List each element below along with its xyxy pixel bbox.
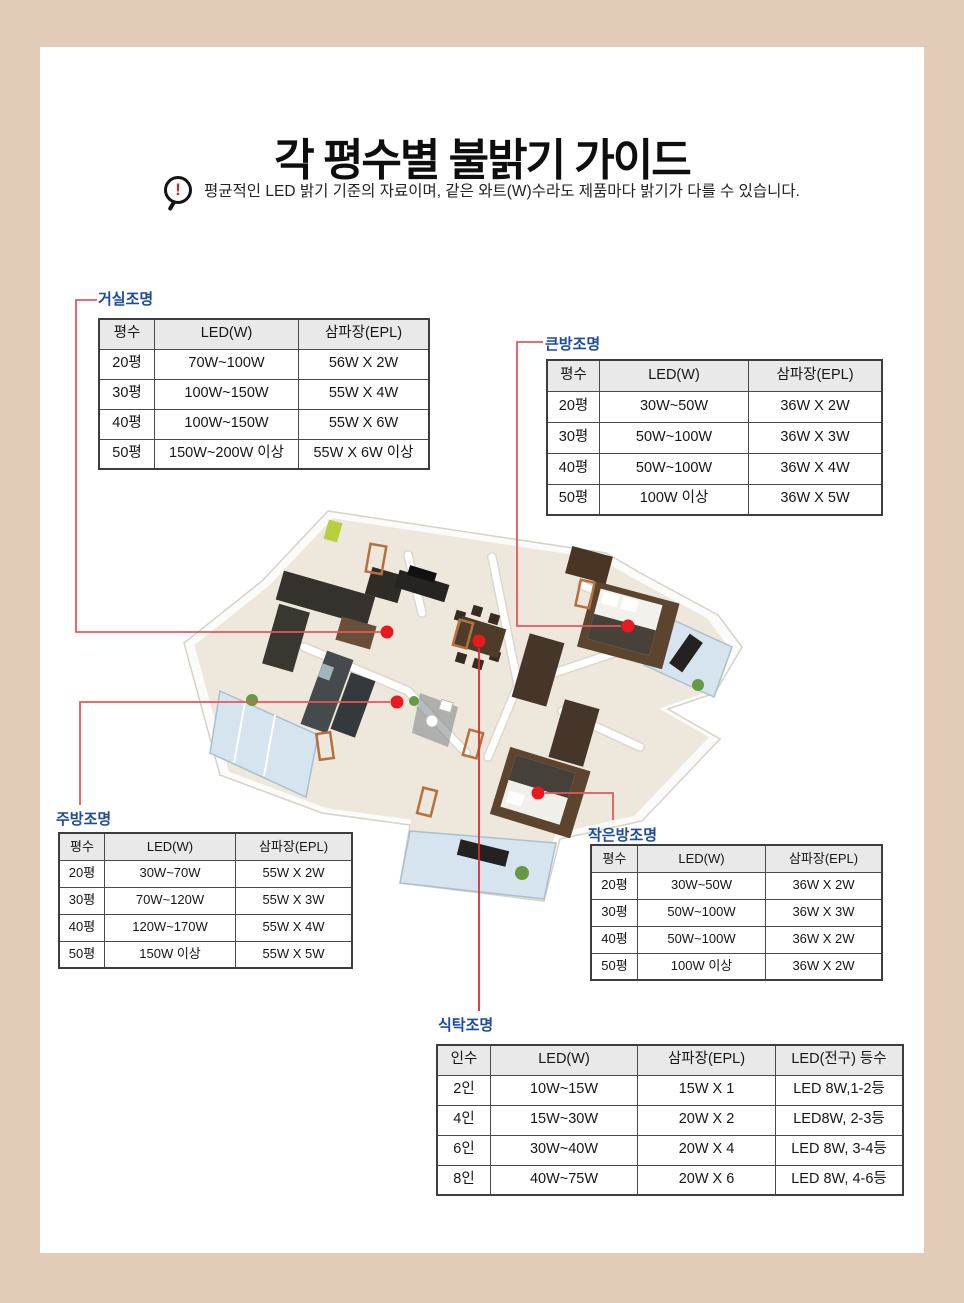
table-cell: 36W X 2W: [766, 872, 883, 899]
notice-row: ! 평균적인 LED 밝기 기준의 자료이며, 같은 와트(W)수라도 제품마다…: [40, 170, 924, 210]
table-cell: 4인: [437, 1105, 491, 1135]
table-cell: LED 8W, 4-6등: [776, 1165, 904, 1195]
table-cell: 8인: [437, 1165, 491, 1195]
table-cell: 36W X 2W: [766, 953, 883, 980]
table-cell: 100W 이상: [600, 484, 749, 515]
table-cell: 30평: [59, 887, 105, 914]
table-cell: 30W~70W: [105, 860, 236, 887]
table-cell: 120W~170W: [105, 914, 236, 941]
table-cell: 10W~15W: [491, 1075, 638, 1105]
table-cell: 36W X 3W: [766, 899, 883, 926]
table-cell: 50평: [591, 953, 638, 980]
table-cell: 20W X 2: [638, 1105, 776, 1135]
table-cell: 36W X 3W: [749, 422, 883, 453]
table-cell: 100W~150W: [155, 409, 299, 439]
living-room-table: 평수LED(W)삼파장(EPL)20평70W~100W56W X 2W30평10…: [98, 318, 430, 470]
table-row: 50평150W~200W 이상55W X 6W 이상: [99, 439, 429, 469]
small-room-table: 평수LED(W)삼파장(EPL)20평30W~50W36W X 2W30평50W…: [590, 844, 883, 981]
kitchen-table: 평수LED(W)삼파장(EPL)20평30W~70W55W X 2W30평70W…: [58, 832, 353, 969]
label-living-room-lighting: 거실조명: [98, 288, 153, 309]
dining-table-table: 인수LED(W)삼파장(EPL)LED(전구) 등수2인10W~15W15W X…: [436, 1044, 904, 1196]
table-header-row: 인수LED(W)삼파장(EPL)LED(전구) 등수: [437, 1045, 903, 1075]
table-header-cell: LED(W): [105, 833, 236, 860]
table-header-cell: 삼파장(EPL): [766, 845, 883, 872]
table-row: 40평50W~100W36W X 2W: [591, 926, 882, 953]
table-row: 30평50W~100W36W X 3W: [591, 899, 882, 926]
table-cell: 30W~50W: [638, 872, 766, 899]
table-row: 20평70W~100W56W X 2W: [99, 349, 429, 379]
table-cell: 20W X 6: [638, 1165, 776, 1195]
table-header-row: 평수LED(W)삼파장(EPL): [547, 360, 882, 391]
table-cell: 55W X 3W: [236, 887, 353, 914]
table-cell: 50W~100W: [600, 422, 749, 453]
table-cell: 36W X 4W: [749, 453, 883, 484]
table-cell: 20평: [59, 860, 105, 887]
table-cell: 100W~150W: [155, 379, 299, 409]
table-row: 50평100W 이상36W X 2W: [591, 953, 882, 980]
table-header-cell: 인수: [437, 1045, 491, 1075]
table-cell: 55W X 6W 이상: [299, 439, 430, 469]
table-row: 30평100W~150W55W X 4W: [99, 379, 429, 409]
table-cell: 36W X 5W: [749, 484, 883, 515]
table-cell: 100W 이상: [638, 953, 766, 980]
table-cell: 55W X 6W: [299, 409, 430, 439]
table-row: 40평50W~100W36W X 4W: [547, 453, 882, 484]
table-cell: 36W X 2W: [749, 391, 883, 422]
table-header-row: 평수LED(W)삼파장(EPL): [99, 319, 429, 349]
table-row: 50평100W 이상36W X 5W: [547, 484, 882, 515]
table-header-cell: 평수: [59, 833, 105, 860]
table-cell: 55W X 2W: [236, 860, 353, 887]
table-header-row: 평수LED(W)삼파장(EPL): [59, 833, 352, 860]
table-row: 40평100W~150W55W X 6W: [99, 409, 429, 439]
table-row: 50평150W 이상55W X 5W: [59, 941, 352, 968]
table-cell: 30평: [547, 422, 600, 453]
table-cell: 40평: [59, 914, 105, 941]
table-row: 40평120W~170W55W X 4W: [59, 914, 352, 941]
table-cell: 50평: [59, 941, 105, 968]
table-row: 20평30W~50W36W X 2W: [547, 391, 882, 422]
table-cell: LED 8W, 3-4등: [776, 1135, 904, 1165]
table-cell: 2인: [437, 1075, 491, 1105]
table-header-cell: 삼파장(EPL): [299, 319, 430, 349]
table-cell: 50W~100W: [638, 899, 766, 926]
label-kitchen-lighting: 주방조명: [56, 808, 111, 829]
table-cell: 30W~50W: [600, 391, 749, 422]
table-cell: 30평: [99, 379, 155, 409]
table-cell: 40평: [99, 409, 155, 439]
table-cell: 55W X 4W: [236, 914, 353, 941]
table-cell: 70W~100W: [155, 349, 299, 379]
table-cell: 20평: [99, 349, 155, 379]
table-cell: 50평: [547, 484, 600, 515]
big-room-table: 평수LED(W)삼파장(EPL)20평30W~50W36W X 2W30평50W…: [546, 359, 883, 516]
table-header-cell: 삼파장(EPL): [749, 360, 883, 391]
table-header-cell: LED(W): [638, 845, 766, 872]
table-cell: 15W X 1: [638, 1075, 776, 1105]
label-big-room-lighting: 큰방조명: [545, 333, 600, 354]
table-row: 30평50W~100W36W X 3W: [547, 422, 882, 453]
table-row: 4인15W~30W20W X 2LED8W, 2-3등: [437, 1105, 903, 1135]
table-cell: 56W X 2W: [299, 349, 430, 379]
table-cell: LED8W, 2-3등: [776, 1105, 904, 1135]
table-row: 8인40W~75W20W X 6LED 8W, 4-6등: [437, 1165, 903, 1195]
table-row: 2인10W~15W15W X 1LED 8W,1-2등: [437, 1075, 903, 1105]
table-cell: 20W X 4: [638, 1135, 776, 1165]
table-cell: 40평: [591, 926, 638, 953]
table-header-cell: 삼파장(EPL): [236, 833, 353, 860]
magnifier-exclamation-icon: !: [164, 176, 192, 204]
table-header-cell: LED(전구) 등수: [776, 1045, 904, 1075]
table-header-cell: 평수: [547, 360, 600, 391]
table-cell: LED 8W,1-2등: [776, 1075, 904, 1105]
table-cell: 50W~100W: [638, 926, 766, 953]
label-dining-lighting: 식탁조명: [438, 1014, 493, 1035]
table-cell: 15W~30W: [491, 1105, 638, 1135]
table-cell: 20평: [591, 872, 638, 899]
table-header-cell: LED(W): [155, 319, 299, 349]
label-small-room-lighting: 작은방조명: [588, 824, 657, 845]
exclamation-glyph: !: [167, 178, 189, 200]
table-cell: 70W~120W: [105, 887, 236, 914]
table-cell: 50W~100W: [600, 453, 749, 484]
table-cell: 50평: [99, 439, 155, 469]
table-header-row: 평수LED(W)삼파장(EPL): [591, 845, 882, 872]
table-header-cell: 평수: [591, 845, 638, 872]
table-cell: 40평: [547, 453, 600, 484]
table-cell: 30W~40W: [491, 1135, 638, 1165]
table-cell: 30평: [591, 899, 638, 926]
table-header-cell: 삼파장(EPL): [638, 1045, 776, 1075]
table-cell: 150W~200W 이상: [155, 439, 299, 469]
table-row: 20평30W~50W36W X 2W: [591, 872, 882, 899]
table-row: 6인30W~40W20W X 4LED 8W, 3-4등: [437, 1135, 903, 1165]
table-cell: 36W X 2W: [766, 926, 883, 953]
table-cell: 40W~75W: [491, 1165, 638, 1195]
floorplan-balcony-bottom: [400, 831, 556, 899]
table-header-cell: 평수: [99, 319, 155, 349]
table-header-cell: LED(W): [491, 1045, 638, 1075]
table-cell: 6인: [437, 1135, 491, 1165]
table-cell: 55W X 4W: [299, 379, 430, 409]
table-cell: 55W X 5W: [236, 941, 353, 968]
table-cell: 150W 이상: [105, 941, 236, 968]
notice-text: 평균적인 LED 밝기 기준의 자료이며, 같은 와트(W)수라도 제품마다 밝…: [204, 179, 800, 201]
table-row: 30평70W~120W55W X 3W: [59, 887, 352, 914]
table-header-cell: LED(W): [600, 360, 749, 391]
table-row: 20평30W~70W55W X 2W: [59, 860, 352, 887]
table-cell: 20평: [547, 391, 600, 422]
